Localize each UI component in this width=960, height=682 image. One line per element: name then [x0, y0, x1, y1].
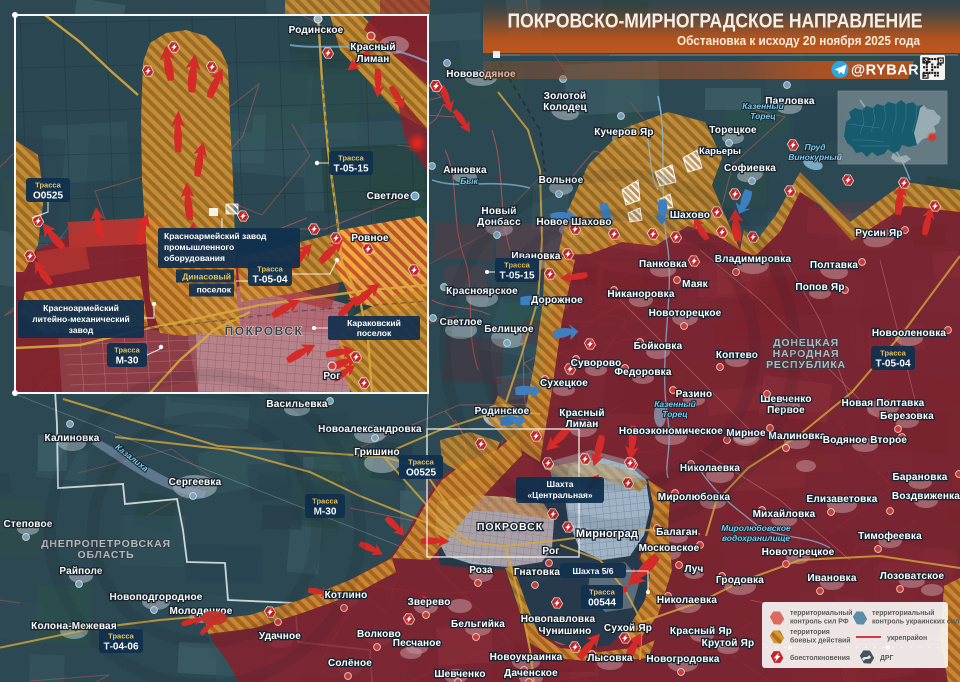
svg-text:Софиевка: Софиевка: [724, 162, 776, 174]
svg-text:Чунишино: Чунишино: [538, 626, 591, 637]
svg-text:Сухой Яр: Сухой Яр: [604, 623, 652, 634]
svg-text:Красноармейский: Красноармейский: [43, 303, 119, 313]
svg-text:Пруд: Пруд: [804, 142, 825, 152]
svg-text:Николаевка: Николаевка: [657, 595, 718, 606]
svg-text:Лиман: Лиман: [356, 54, 389, 65]
svg-text:Бык: Бык: [460, 176, 478, 186]
svg-text:Балаган: Балаган: [656, 527, 698, 538]
svg-text:Никаноровка: Никаноровка: [607, 289, 674, 300]
svg-text:Родинское: Родинское: [289, 25, 344, 36]
svg-text:Красный: Красный: [559, 408, 604, 419]
svg-text:Сергеевка: Сергеевка: [169, 477, 222, 488]
svg-text:Шахта 5/6: Шахта 5/6: [572, 566, 613, 576]
svg-text:Дорожное: Дорожное: [531, 295, 583, 306]
svg-text:Трасса: Трасса: [108, 632, 134, 641]
svg-text:укрепрайон: укрепрайон: [887, 634, 927, 642]
svg-text:Трасса: Трасса: [114, 346, 140, 355]
svg-text:Водяное Второе: Водяное Второе: [823, 435, 908, 446]
svg-text:РЕСПУБЛИКА: РЕСПУБЛИКА: [766, 359, 846, 371]
svg-text:Елизаветовка: Елизаветовка: [806, 494, 877, 505]
svg-text:Торец: Торец: [662, 409, 688, 419]
svg-text:поселок: поселок: [357, 328, 392, 338]
svg-text:Трасса: Трасса: [880, 349, 906, 358]
svg-text:Михайловка: Михайловка: [753, 509, 816, 520]
svg-text:Лозоватское: Лозоватское: [880, 571, 945, 582]
svg-text:завод: завод: [69, 325, 94, 335]
svg-text:Рог: Рог: [323, 371, 340, 382]
svg-text:М-30: М-30: [116, 356, 139, 367]
svg-text:Луч: Луч: [685, 564, 704, 575]
svg-text:Трасса: Трасса: [257, 265, 283, 274]
svg-text:Динасовый: Динасовый: [182, 272, 231, 282]
svg-text:Маяк: Маяк: [682, 279, 708, 290]
svg-text:водохранилище: водохранилище: [722, 533, 791, 543]
svg-text:Федоровка: Федоровка: [614, 367, 672, 378]
svg-text:Удачное: Удачное: [259, 631, 301, 642]
svg-text:Т-05-15: Т-05-15: [333, 164, 368, 175]
svg-text:Солёное: Солёное: [328, 658, 372, 669]
svg-text:Роза: Роза: [469, 565, 493, 576]
svg-text:Торец: Торец: [750, 111, 776, 121]
svg-text:Шевченко: Шевченко: [434, 669, 485, 680]
svg-text:Бельгийка: Бельгийка: [451, 619, 505, 630]
svg-text:Воздвиженка: Воздвиженка: [892, 491, 960, 502]
svg-text:Трасса: Трасса: [408, 458, 434, 467]
svg-text:Казенный: Казенный: [654, 399, 696, 409]
svg-text:контроль украинских сил: контроль украинских сил: [872, 619, 959, 626]
svg-text:Гришино: Гришино: [354, 447, 400, 458]
svg-text:Т-05-04: Т-05-04: [252, 275, 287, 286]
svg-text:Березовка: Березовка: [880, 411, 934, 422]
svg-text:@RYBAR: @RYBAR: [851, 63, 919, 79]
svg-text:Крутой Яр: Крутой Яр: [702, 638, 755, 649]
svg-text:ДРГ: ДРГ: [880, 655, 894, 662]
svg-text:Казенный: Казенный: [742, 101, 784, 111]
svg-text:Красноармейский завод: Красноармейский завод: [164, 231, 267, 241]
svg-text:Шахово: Шахово: [670, 210, 710, 221]
svg-text:Панковка: Панковка: [639, 259, 687, 270]
svg-text:Новоукраинка: Новоукраинка: [490, 652, 563, 663]
svg-text:Волково: Волково: [357, 629, 401, 640]
svg-text:Лиман: Лиман: [565, 419, 598, 430]
svg-text:Анновка: Анновка: [443, 165, 487, 176]
svg-text:Гнатовка: Гнатовка: [514, 567, 560, 578]
svg-text:ПОКРОВСК: ПОКРОВСК: [477, 521, 543, 533]
svg-text:О0525: О0525: [33, 191, 63, 202]
svg-text:Новопавловка: Новопавловка: [521, 614, 596, 625]
svg-text:Новая Полтавка: Новая Полтавка: [842, 398, 925, 409]
svg-text:Русин Яр: Русин Яр: [855, 228, 902, 239]
svg-text:Светлое: Светлое: [367, 191, 410, 202]
svg-text:Новоторецкое: Новоторецкое: [762, 547, 835, 558]
svg-text:боевых действий: боевых действий: [790, 637, 851, 645]
svg-text:Трасса: Трасса: [338, 154, 364, 163]
svg-text:О0525: О0525: [406, 468, 436, 479]
svg-text:Трасса: Трасса: [589, 588, 615, 597]
svg-text:территориальный: территориальный: [790, 609, 853, 617]
svg-text:ОБЛАСТЬ: ОБЛАСТЬ: [77, 549, 134, 561]
svg-text:поселок: поселок: [197, 285, 232, 295]
svg-text:Винокурный: Винокурный: [788, 152, 842, 162]
svg-text:Барановка: Барановка: [892, 472, 947, 483]
svg-text:промышленного: промышленного: [164, 242, 234, 252]
svg-text:Ивановка: Ивановка: [807, 573, 856, 584]
svg-text:Лысовка: Лысовка: [587, 653, 633, 664]
svg-text:оборудования: оборудования: [164, 253, 225, 263]
svg-text:Карьеры: Карьеры: [699, 146, 741, 157]
svg-text:Колодец: Колодец: [543, 102, 587, 113]
svg-text:Трасса: Трасса: [35, 181, 61, 190]
svg-text:Т-05-04: Т-05-04: [875, 359, 910, 370]
svg-text:Рог: Рог: [542, 546, 559, 557]
svg-text:Ровное: Ровное: [351, 233, 389, 244]
svg-text:Даченское: Даченское: [504, 668, 558, 679]
svg-text:Кучеров Яр: Кучеров Яр: [594, 127, 653, 138]
svg-text:Новооленовка: Новооленовка: [872, 328, 947, 339]
svg-text:Новогродовка: Новогродовка: [646, 654, 720, 665]
svg-text:Зверево: Зверево: [407, 597, 450, 608]
svg-text:Сухецкое: Сухецкое: [540, 378, 588, 389]
svg-text:Бойковка: Бойковка: [634, 341, 683, 352]
svg-text:литейно-механический: литейно-механический: [32, 314, 130, 324]
svg-text:Московское: Московское: [639, 543, 700, 554]
svg-text:Миролюбовское: Миролюбовское: [721, 523, 791, 533]
svg-text:Тимофеевка: Тимофеевка: [858, 530, 922, 542]
svg-text:контроль сил РФ: контроль сил РФ: [790, 619, 849, 626]
svg-text:Красный: Красный: [350, 42, 395, 53]
svg-text:боестолкновения: боестолкновения: [790, 654, 850, 662]
svg-text:Полтавка: Полтавка: [810, 260, 858, 271]
svg-text:ПОКРОВСКО-МИРНОГРАДСКОЕ НАПРАВ: ПОКРОВСКО-МИРНОГРАДСКОЕ НАПРАВЛЕНИЕ: [508, 11, 923, 33]
svg-text:00544: 00544: [588, 598, 616, 609]
svg-text:Обстановка к исходу 20 ноября: Обстановка к исходу 20 ноября 2025 года: [677, 34, 921, 48]
svg-text:территория: территория: [790, 629, 830, 636]
svg-text:Гродовка: Гродовка: [716, 575, 764, 586]
svg-text:Караковский: Караковский: [347, 318, 401, 328]
svg-text:Попов Яр: Попов Яр: [795, 282, 844, 293]
svg-text:Новоторецкое: Новоторецкое: [649, 308, 722, 319]
svg-text:Новоэкономическое: Новоэкономическое: [619, 426, 723, 437]
svg-text:Красный Яр: Красный Яр: [670, 626, 732, 637]
svg-text:ПОКРОВСК: ПОКРОВСК: [225, 324, 304, 338]
svg-text:Золотой: Золотой: [544, 91, 587, 102]
svg-text:территориальный: территориальный: [872, 609, 935, 617]
svg-text:Торецкое: Торецкое: [709, 125, 757, 136]
